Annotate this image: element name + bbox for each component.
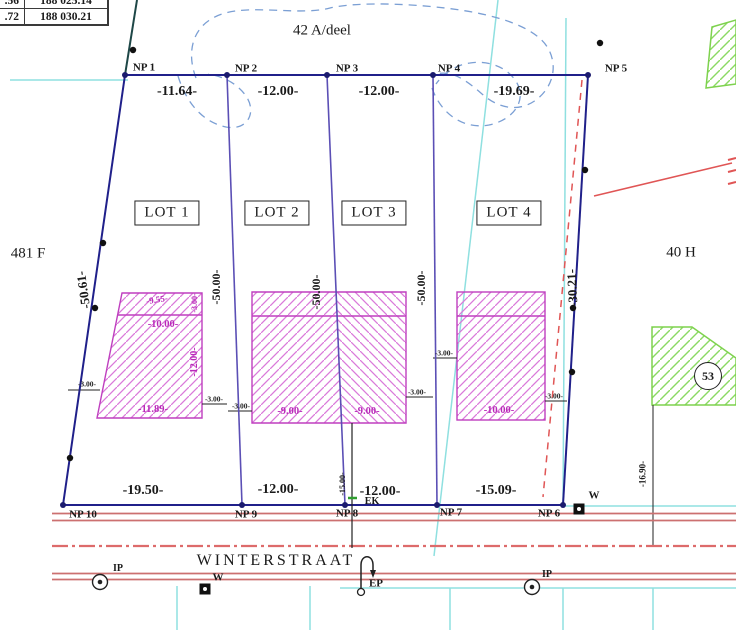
- table-row: .72 188 030.21: [0, 9, 108, 26]
- parcel-label-left: 481 F: [11, 247, 46, 262]
- survey-point-dots: [60, 72, 591, 508]
- cadastral-plan: .56 188 025.14 .72 188 030.21 42 A/deel …: [0, 0, 736, 630]
- dim-offset-6: -3.00-: [545, 392, 563, 400]
- ip-symbol-left: [93, 575, 108, 590]
- street-name: WINTERSTRAAT: [197, 553, 356, 569]
- coord-cell: 188 030.21: [25, 9, 109, 26]
- ip-label-left: IP: [113, 564, 123, 574]
- lot-division-lines: [227, 75, 437, 505]
- coord-cell: 188 025.14: [25, 0, 109, 9]
- dim-offset-3: -3.00-: [232, 402, 250, 410]
- dim-top-1: -11.64-: [157, 85, 197, 99]
- np4-label: NP 4: [438, 64, 460, 75]
- parcel-label-right: 40 H: [666, 246, 696, 261]
- np2-label: NP 2: [235, 64, 257, 75]
- dim-bottom-4: -15.09-: [476, 484, 517, 498]
- np5-label: NP 5: [605, 64, 627, 75]
- np10-label: NP 10: [69, 510, 97, 521]
- dim-b1-depth: -12.00-: [190, 347, 200, 376]
- np3-label: NP 3: [336, 64, 358, 75]
- dim-top-3: -12.00-: [359, 85, 400, 99]
- w-symbol-street: [200, 584, 211, 595]
- parcel-label-top: 42 A/deel: [293, 24, 351, 39]
- dim-service-line: -15.00-: [339, 472, 347, 495]
- building-lot2-lot3: [252, 292, 406, 423]
- ep-label: EP: [369, 579, 383, 590]
- lot1-label: LOT 1: [134, 201, 199, 226]
- green-structures: [652, 20, 736, 405]
- parcel-number-circle: 53: [694, 362, 722, 390]
- lot2-label: LOT 2: [244, 201, 309, 226]
- dim-offset-4: -3.00-: [408, 388, 426, 396]
- table-row: .56 188 025.14: [0, 0, 108, 9]
- w-label-street: W: [213, 573, 224, 584]
- coord-cell: .56: [0, 0, 25, 9]
- dim-right-offset: -16.90-: [639, 461, 648, 487]
- dim-offset-5: -3.00-: [435, 349, 453, 357]
- dim-offset-2: -3.00-: [205, 395, 223, 403]
- dim-b1-strip: -3.00-: [191, 293, 199, 312]
- np8-label: NP 8: [336, 509, 358, 520]
- red-annotation: [594, 158, 736, 196]
- dim-b2-left: -9.00-: [277, 407, 302, 418]
- dim-bottom-1: -19.50-: [123, 484, 164, 498]
- building-lot1: [97, 293, 202, 418]
- np9-label: NP 9: [235, 510, 257, 521]
- coord-cell: .72: [0, 9, 25, 26]
- dim-offset-1: -3.00-: [78, 380, 96, 388]
- ip-symbol-right: [525, 580, 540, 595]
- dim-top-2: -12.00-: [258, 85, 299, 99]
- dim-right-boundary: -30.21-: [565, 269, 580, 308]
- np6-label: NP 6: [538, 509, 560, 520]
- lot4-label: LOT 4: [476, 201, 541, 226]
- lot3-label: LOT 3: [341, 201, 406, 226]
- parcel-number: 53: [702, 369, 714, 384]
- dim-b4-bottom: -10.00-: [484, 406, 515, 417]
- dim-b2-right: -9.00-: [354, 407, 379, 418]
- w-symbol-np6: [574, 504, 585, 515]
- np1-label: NP 1: [133, 63, 155, 74]
- parcel-boundary: [63, 75, 588, 505]
- dim-bottom-2: -12.00-: [258, 483, 299, 497]
- dim-lot-depth-3: -50.00-: [415, 271, 427, 306]
- dim-lot-depth-2: -50.00-: [310, 275, 322, 310]
- ep-symbol: [358, 589, 365, 596]
- w-label-np6: W: [589, 491, 600, 502]
- ek-label: EK: [365, 497, 379, 507]
- dim-b1-width: -10.00-: [148, 320, 179, 331]
- coordinate-table: .56 188 025.14 .72 188 030.21: [0, 0, 109, 26]
- ip-label-right: IP: [542, 570, 552, 580]
- dim-b1-bottom: -11.89-: [138, 405, 168, 416]
- np7-label: NP 7: [440, 508, 462, 519]
- dim-top-4: -19.69-: [494, 85, 535, 99]
- dim-lot-depth-1: -50.00-: [210, 270, 222, 305]
- building-lot4: [457, 292, 545, 420]
